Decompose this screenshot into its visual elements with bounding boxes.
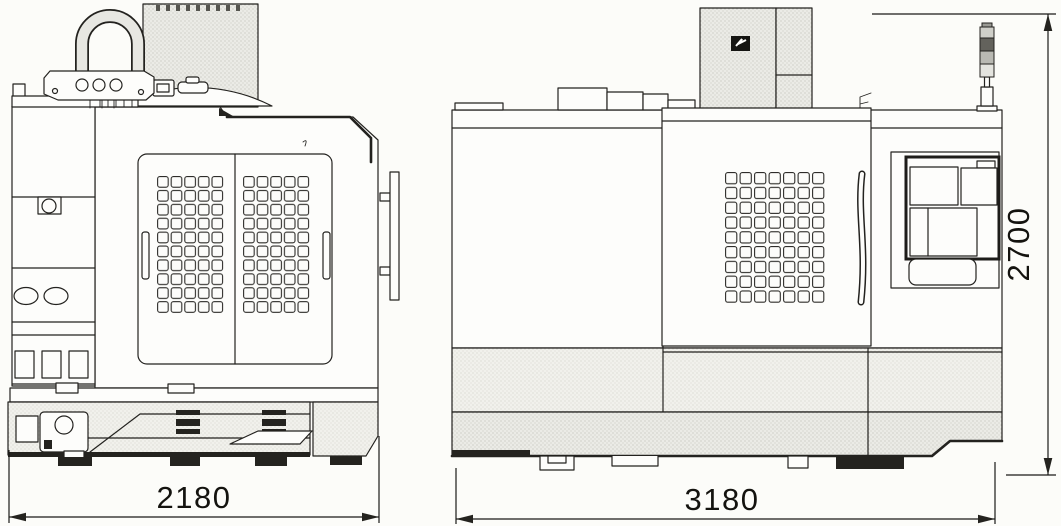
control-panel	[891, 152, 999, 288]
foot-pad	[330, 456, 362, 465]
bracket-hole	[110, 79, 122, 91]
tower-rod	[985, 77, 990, 87]
arrowhead	[362, 513, 379, 522]
base-notch	[612, 456, 658, 466]
base-tab	[56, 383, 78, 393]
cabinet-louver	[15, 351, 34, 378]
base-dark-edge	[452, 450, 530, 456]
foot-pad	[836, 456, 904, 469]
lamp-segment	[980, 51, 994, 64]
tower-base	[981, 87, 993, 106]
foot-pad	[255, 457, 287, 466]
pendant-bracket	[380, 267, 390, 275]
arrowhead	[1044, 458, 1053, 475]
dimension-label-height: 2700	[1001, 207, 1036, 282]
foot-pad	[170, 457, 200, 466]
lamp-segment	[980, 64, 994, 77]
arrowhead	[1044, 14, 1053, 31]
left-door-handle	[142, 232, 149, 279]
roof-unit	[607, 92, 643, 110]
key-panel	[910, 208, 977, 256]
brand-logo-icon	[731, 36, 750, 51]
side-door-window-grid	[725, 172, 825, 303]
dimension-label-front-width: 2180	[157, 480, 232, 515]
bracket-pin	[139, 90, 144, 95]
signal-tower-icon	[977, 23, 997, 111]
base-side-skirt	[313, 402, 378, 456]
pump-port	[55, 416, 73, 434]
lamp-segment	[980, 27, 994, 38]
base-bottom-edge	[8, 452, 310, 457]
foot-tab	[788, 456, 808, 468]
machine-base-side	[452, 348, 1003, 470]
right-door-window-grid	[243, 176, 310, 314]
base-tab	[168, 384, 194, 393]
bracket-pin	[53, 89, 58, 94]
cabinet-louver	[69, 351, 88, 378]
right-door-handle	[323, 232, 330, 279]
panel-top-strip	[977, 161, 995, 168]
machining-center-drawing: 2180 3180 2700	[0, 0, 1061, 526]
dimension-label-side-length: 3180	[685, 482, 760, 517]
cover-cap-top	[186, 77, 199, 83]
front-view	[8, 4, 399, 466]
cabinet-louver	[42, 351, 61, 378]
cabinet-vent-hole	[44, 288, 68, 305]
lamp-segment	[980, 38, 994, 51]
secondary-screen	[961, 168, 997, 205]
base-upper-band	[452, 348, 1002, 412]
pendant-arm-edge	[380, 172, 399, 300]
arrowhead	[9, 513, 26, 522]
crt-screen	[910, 167, 958, 205]
lamp-cap	[982, 23, 992, 27]
roof-unit	[558, 88, 607, 110]
lifting-shackle-icon	[44, 16, 154, 108]
cover-clamp-inner	[157, 84, 169, 92]
side-door-handle	[861, 174, 863, 302]
rear-cabinet	[452, 88, 668, 348]
electrical-cabinet	[12, 106, 95, 386]
keyboard-tray	[909, 259, 976, 285]
cover-cap	[178, 82, 208, 93]
guide-rail-stack	[176, 410, 200, 434]
foot-block-inner	[548, 456, 566, 463]
foot-pad	[58, 457, 92, 466]
side-view	[452, 8, 1003, 470]
sliding-doors	[138, 154, 332, 364]
pendant-bracket	[380, 193, 390, 201]
pendant-panel-edge	[390, 172, 399, 300]
rear-top-lip	[455, 103, 503, 110]
machine-base-front	[8, 383, 378, 466]
bracket-hole	[76, 79, 88, 91]
tower-base-plate	[977, 106, 997, 111]
base-slot	[64, 451, 84, 458]
rear-body	[452, 110, 663, 348]
arrowhead	[978, 515, 995, 524]
pump-box	[16, 416, 38, 442]
base-lower-band	[452, 412, 1002, 456]
arrowhead	[456, 515, 473, 524]
scanned-technical-drawing: 2180 3180 2700	[0, 0, 1061, 526]
cabinet-hole	[42, 199, 56, 213]
side-door	[662, 108, 871, 346]
pump-bolt	[44, 440, 52, 449]
cabinet-vent-hole	[14, 288, 38, 305]
dimension-side-length: 3180	[456, 462, 995, 524]
bracket-hole	[93, 79, 105, 91]
left-door-window-grid	[157, 176, 224, 314]
